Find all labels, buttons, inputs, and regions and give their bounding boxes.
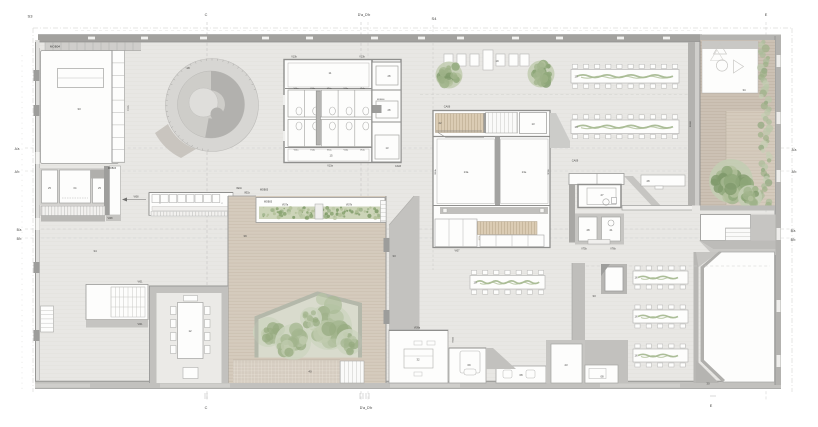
- svg-text:13: 13: [531, 122, 535, 126]
- svg-text:13a: 13a: [464, 170, 469, 174]
- svg-text:E: E: [765, 13, 768, 17]
- svg-text:23: 23: [564, 363, 568, 367]
- svg-text:18: 18: [186, 66, 190, 70]
- svg-text:CA03: CA03: [395, 165, 402, 168]
- svg-text:21: 21: [609, 228, 613, 232]
- svg-text:VI07b: VI07b: [346, 204, 353, 207]
- svg-text:28: 28: [646, 179, 650, 183]
- svg-text:S4: S4: [432, 16, 438, 21]
- svg-text:A'b: A'b: [792, 170, 797, 174]
- svg-text:33: 33: [392, 254, 396, 258]
- svg-text:V13b: V13b: [291, 56, 297, 59]
- svg-text:S3: S3: [28, 14, 34, 19]
- svg-text:16: 16: [634, 276, 638, 280]
- svg-text:VE1b: VE1b: [236, 187, 243, 190]
- svg-text:MS06: MS06: [690, 120, 692, 126]
- svg-text:MOB03: MOB03: [108, 167, 117, 170]
- svg-text:CA06: CA06: [444, 105, 451, 109]
- svg-text:22: 22: [438, 121, 442, 125]
- svg-text:VI11b: VI11b: [435, 168, 437, 174]
- svg-text:08: 08: [600, 375, 604, 379]
- svg-text:08: 08: [519, 373, 523, 377]
- svg-text:B'b: B'b: [791, 238, 796, 242]
- svg-text:VI08: VI08: [108, 217, 114, 220]
- svg-text:B'b: B'b: [17, 237, 22, 241]
- svg-text:MOB05: MOB05: [260, 189, 269, 192]
- svg-text:12: 12: [188, 329, 192, 333]
- svg-text:18: 18: [473, 280, 477, 284]
- svg-text:MOB05: MOB05: [264, 201, 273, 204]
- svg-text:16: 16: [634, 315, 638, 319]
- svg-text:34: 34: [93, 249, 97, 253]
- svg-text:E: E: [710, 404, 713, 408]
- svg-text:33: 33: [77, 107, 81, 111]
- svg-text:33: 33: [592, 294, 596, 298]
- svg-text:D'a_D'b: D'a_D'b: [358, 13, 371, 17]
- svg-text:13e: 13e: [522, 170, 527, 174]
- svg-text:VI08: VI08: [134, 196, 140, 199]
- svg-text:V13a: V13a: [327, 165, 333, 168]
- svg-text:VE1b: VE1b: [244, 192, 251, 195]
- svg-text:09: 09: [467, 363, 471, 367]
- svg-text:18: 18: [574, 74, 578, 78]
- svg-text:A'a: A'a: [15, 147, 20, 151]
- svg-text:VT6b: VT6b: [610, 249, 616, 251]
- svg-text:CA09: CA09: [572, 159, 579, 163]
- svg-text:18: 18: [574, 125, 578, 129]
- svg-text:V13b: V13b: [359, 56, 365, 59]
- svg-text:D'a_D'b: D'a_D'b: [360, 406, 373, 410]
- svg-text:VI01: VI01: [138, 281, 144, 284]
- svg-text:MOB06: MOB06: [377, 99, 385, 101]
- svg-text:VT5b: VT5b: [581, 249, 587, 251]
- svg-text:15: 15: [329, 154, 333, 158]
- svg-text:FUA: FUA: [126, 105, 130, 110]
- svg-text:28: 28: [586, 228, 590, 232]
- svg-text:19: 19: [495, 59, 499, 63]
- svg-text:C: C: [205, 406, 208, 410]
- svg-text:32: 32: [416, 358, 420, 362]
- svg-text:16: 16: [634, 354, 638, 358]
- svg-text:MOB04: MOB04: [50, 45, 61, 49]
- svg-text:A'a: A'a: [792, 148, 797, 152]
- svg-text:VI07a: VI07a: [282, 204, 289, 207]
- svg-text:B'a: B'a: [17, 228, 22, 232]
- svg-text:39: 39: [243, 234, 247, 238]
- svg-text:B'a: B'a: [791, 229, 796, 233]
- svg-text:C: C: [205, 13, 208, 17]
- svg-text:VI09a: VI09a: [414, 327, 421, 330]
- svg-text:34: 34: [742, 88, 746, 92]
- svg-text:30: 30: [706, 382, 710, 386]
- svg-text:40: 40: [308, 370, 312, 374]
- svg-text:V02A: V02A: [452, 337, 455, 343]
- svg-text:VI07: VI07: [455, 250, 461, 253]
- svg-text:11: 11: [329, 71, 332, 75]
- svg-text:A'b: A'b: [15, 170, 20, 174]
- svg-text:27: 27: [600, 193, 604, 197]
- svg-text:VI11b: VI11b: [547, 169, 549, 175]
- svg-text:VI01: VI01: [138, 323, 144, 326]
